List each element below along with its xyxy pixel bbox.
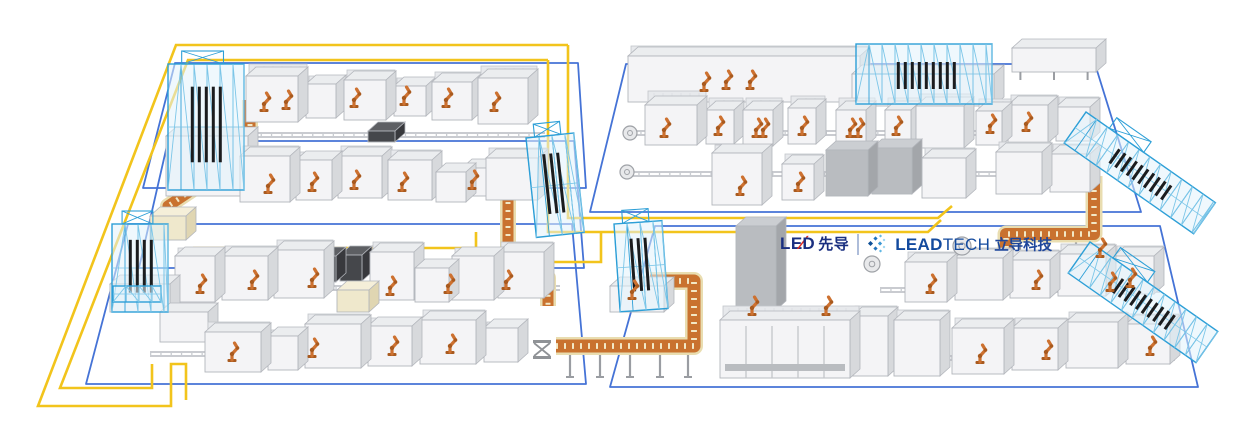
machine <box>368 317 422 366</box>
scissor-lift <box>533 340 551 359</box>
logo-separator <box>857 234 859 255</box>
leadtech-light: TECH <box>943 235 990 255</box>
machine <box>905 252 957 302</box>
machine <box>306 75 346 118</box>
turntable <box>620 165 634 179</box>
machine <box>706 98 744 144</box>
diamond-shape <box>879 249 882 252</box>
scissor-lifts <box>533 340 551 359</box>
brand-logo: LE ∕ D 先导 LEAD TECH 立导科技 <box>780 229 1052 259</box>
machine <box>388 150 442 200</box>
machine <box>394 77 436 116</box>
diamond-shape <box>874 236 878 240</box>
leadtech-bold: LEAD <box>895 235 942 255</box>
machine <box>296 151 342 200</box>
lead-wordmark: LE ∕ D 先导 <box>780 233 849 255</box>
storage-rack-truss <box>856 44 992 104</box>
storage-rack-truss <box>168 51 244 190</box>
storage-rack-truss <box>613 208 668 312</box>
machine <box>872 139 922 194</box>
machine <box>720 306 860 378</box>
machine <box>452 247 504 300</box>
storage-rack-truss <box>525 120 585 237</box>
machine <box>743 98 783 146</box>
machine <box>338 146 392 198</box>
diamond-shape <box>883 239 886 242</box>
machine <box>922 148 976 198</box>
machine <box>478 66 538 124</box>
diamond-shape <box>874 246 878 250</box>
machine <box>337 281 379 312</box>
storage-rack-truss <box>113 286 161 302</box>
lead-chinese: 先导 <box>818 233 849 254</box>
diamond-shape <box>878 241 882 245</box>
diamond-shape <box>879 234 882 237</box>
machine <box>1012 39 1106 80</box>
machine <box>996 142 1052 194</box>
machine <box>736 217 786 310</box>
leadtech-wordmark: LEAD TECH 立导科技 <box>895 234 1052 255</box>
machine <box>1066 312 1128 368</box>
factory-layout-render <box>0 0 1235 441</box>
lead-prefix: LE <box>780 234 803 254</box>
machine <box>645 91 707 145</box>
machine <box>1012 318 1068 370</box>
lead-suffix: D <box>802 234 815 254</box>
machine <box>344 70 396 120</box>
machine <box>222 246 278 300</box>
leadtech-diamond-icon <box>867 234 887 254</box>
diamond-shape <box>883 246 886 249</box>
machine <box>274 240 334 298</box>
machine <box>484 319 528 362</box>
factory-line-illustration: LE ∕ D 先导 LEAD TECH 立导科技 <box>0 0 1235 441</box>
machine <box>826 141 878 196</box>
machine <box>1008 95 1058 143</box>
leadtech-chinese: 立导科技 <box>994 234 1052 255</box>
diamond-shape <box>868 241 873 246</box>
machine <box>894 310 950 376</box>
machine <box>432 72 482 120</box>
turntable <box>623 126 637 140</box>
machine <box>368 122 405 142</box>
machine <box>246 64 308 122</box>
machine <box>268 327 308 370</box>
